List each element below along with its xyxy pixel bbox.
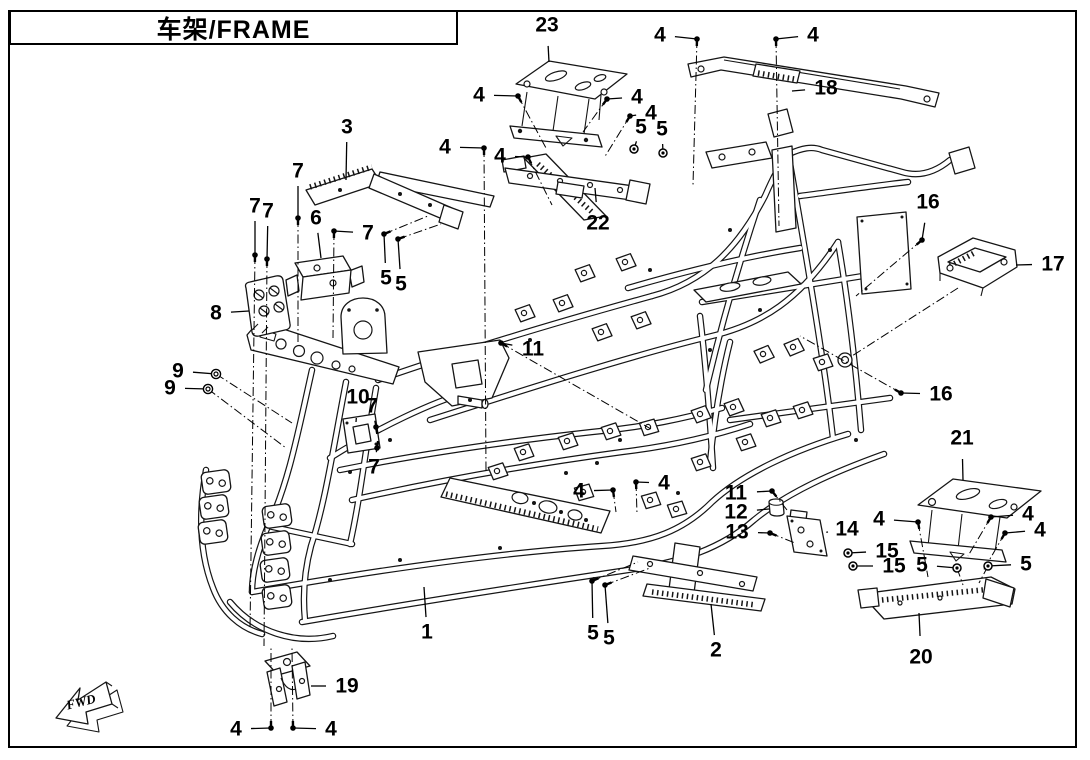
callout-leader-line [293,728,316,729]
callout-leader-line [592,581,593,618]
callout-number-16: 16 [929,383,952,406]
callout-7: 7 [292,160,304,343]
callout-4: 4 [654,24,700,186]
bolt-icon [290,725,296,731]
part-2-drawing [629,543,765,611]
part-12-drawing [769,499,784,516]
callout-number-7: 7 [362,222,374,245]
callout-dash-line [216,374,292,423]
tube-core [201,470,262,634]
callout-number-4: 4 [473,84,485,107]
callout-19: 19 [311,675,359,698]
bolt-icon [525,154,531,160]
rear-panel [857,212,911,294]
callout-leader-line [962,459,963,480]
callout-20: 20 [909,613,932,669]
callout-4: 4 [983,519,1046,572]
callout-leader-line [334,231,353,232]
callout-number-14: 14 [835,518,859,541]
bolt-icon [498,340,504,346]
bolt-icon [373,424,379,430]
part-19-drawing [265,652,310,706]
callout-number-4: 4 [439,136,451,159]
bolt-icon [915,519,921,525]
callout-1: 1 [421,587,433,644]
bolt-icon [264,256,270,262]
callout-23: 23 [535,14,558,63]
part-17-alignment-line [852,288,958,356]
callout-3: 3 [341,116,353,181]
part-8-drawing [246,276,291,336]
callout-13: 13 [725,521,795,544]
callout-number-4: 4 [631,86,643,109]
callout-number-3: 3 [341,116,353,139]
callout-number-5: 5 [635,116,647,139]
callout-number-1: 1 [421,621,433,644]
callout-number-5: 5 [916,554,928,577]
callout-number-5: 5 [587,622,599,645]
callout-5: 5 [916,554,963,586]
bolt-icon [515,93,521,99]
callout-14: 14 [826,518,859,541]
callout-leader-line [460,147,484,148]
callout-leader-line [792,90,805,91]
callout-leader-line [776,37,798,39]
callout-leader-line [919,613,920,636]
callout-2: 2 [710,604,722,662]
callout-number-5: 5 [1020,553,1032,576]
callout-number-7: 7 [368,456,380,479]
callout-number-2: 2 [710,639,722,662]
grab-bar-cap-left [768,109,793,137]
callout-number-5: 5 [656,118,668,141]
callout-leader-line [605,585,608,623]
bolt-icon [602,582,608,588]
bolt-icon [331,228,337,234]
callout-number-4: 4 [230,718,242,741]
callout-number-7: 7 [262,200,274,223]
tube-core [800,182,908,196]
callout-number-4: 4 [1022,503,1034,526]
callout-leader-line [1005,531,1025,533]
callout-leader-line [494,95,518,96]
callout-number-4: 4 [654,24,666,47]
callout-5: 5 [602,568,650,650]
callout-number-4: 4 [325,718,337,741]
nut-icon [851,564,854,567]
callout-leader-line [894,520,918,522]
callout-8: 8 [210,302,249,325]
callout-leader-line [346,142,347,180]
washer-icon [214,372,218,376]
callout-9: 9 [172,360,292,424]
bolt-icon [268,725,274,731]
part-14-drawing [787,510,827,556]
bolt-icon [627,113,633,119]
callout-leader-line [711,604,714,635]
bolt-icon [1002,530,1008,536]
callout-5: 5 [395,224,441,296]
bolt-icon [252,252,258,258]
title-box: 车架/FRAME [9,10,458,45]
bolt-icon [769,488,775,494]
nut-icon [955,566,958,569]
callout-leader-line [267,226,268,259]
nut-icon [632,147,635,150]
callout-5: 5 [630,116,647,154]
callout-number-21: 21 [950,427,974,450]
callout-number-18: 18 [814,77,838,100]
bolt-icon [395,236,401,242]
bolt-icon [633,479,639,485]
nut-icon [986,564,989,567]
callout-dash-line [208,389,286,448]
callout-leader-line [398,239,400,269]
callout-5: 5 [656,118,668,158]
callout-number-13: 13 [725,521,748,544]
callout-number-4: 4 [807,24,819,47]
callout-leader-line [318,233,321,258]
callout-number-8: 8 [210,302,222,325]
callout-number-22: 22 [586,212,609,235]
callout-number-15: 15 [882,555,906,578]
nut-icon [846,551,849,554]
parts-diagram-page: 2344184445534477767225516178119910716721… [0,0,1090,760]
callout-dash-line [333,231,334,338]
bolt-icon [694,36,700,42]
frame-artwork [198,57,1041,706]
callout-number-16: 16 [916,191,939,214]
part-6-drawing [286,256,364,300]
callout-number-5: 5 [395,273,407,296]
grab-bar-cap-right [949,147,975,174]
callout-number-7: 7 [249,195,261,218]
callout-leader-line [251,728,271,729]
callout-leader-line [231,311,249,312]
bolt-icon [610,487,616,493]
callout-number-23: 23 [535,14,558,37]
callout-number-4: 4 [873,508,885,531]
page-title: 车架/FRAME [157,10,311,46]
callout-number-7: 7 [292,160,304,183]
bolt-icon [589,578,595,584]
callouts-layer: 2344184445534477767225516178119910716721… [164,14,1065,741]
callout-number-19: 19 [335,675,358,698]
callout-6: 6 [310,207,322,259]
callout-number-20: 20 [909,646,932,669]
bolt-icon [381,231,387,237]
callout-number-5: 5 [603,627,615,650]
bolt-icon [295,215,301,221]
bolt-icon [988,514,994,520]
part-20-drawing [858,577,1015,619]
bolt-icon [481,145,487,151]
callout-17: 17 [1016,253,1065,276]
callout-number-4: 4 [573,480,585,503]
callout-number-7: 7 [366,395,378,418]
tube-core [789,158,833,438]
steering-arch-bracket [341,298,387,354]
part-17-drawing [938,238,1017,296]
washer-icon [206,387,210,391]
callout-number-4: 4 [1034,519,1046,542]
callout-dash-line [604,116,630,158]
bolt-icon [919,237,925,243]
callout-number-4: 4 [494,145,506,168]
callout-11: 11 [498,338,651,430]
bolt-icon [898,390,904,396]
callout-21: 21 [950,427,974,481]
part-22-drawing [502,154,650,220]
callout-number-5: 5 [380,267,392,290]
bolt-icon [374,445,380,451]
bolt-icon [773,36,779,42]
bolt-icon [767,530,773,536]
nut-icon [661,151,664,154]
callout-leader-line [384,234,385,263]
bolt-icon [604,96,610,102]
callout-number-9: 9 [164,377,176,400]
part-23-drawing [510,61,627,147]
callout-leader-line [675,37,697,39]
callout-9: 9 [164,377,286,449]
callout-number-6: 6 [310,207,322,230]
callout-dash-line [693,39,697,185]
callout-number-11: 11 [522,338,545,361]
callout-leader-line [548,46,549,62]
callout-leader-line [594,490,613,491]
callout-number-4: 4 [658,472,670,495]
frame-exploded-diagram: 2344184445534477767225516178119910716721… [0,0,1090,760]
fwd-marker: FWD [56,682,123,732]
callout-number-17: 17 [1041,253,1064,276]
part-3-drawing [306,167,494,229]
